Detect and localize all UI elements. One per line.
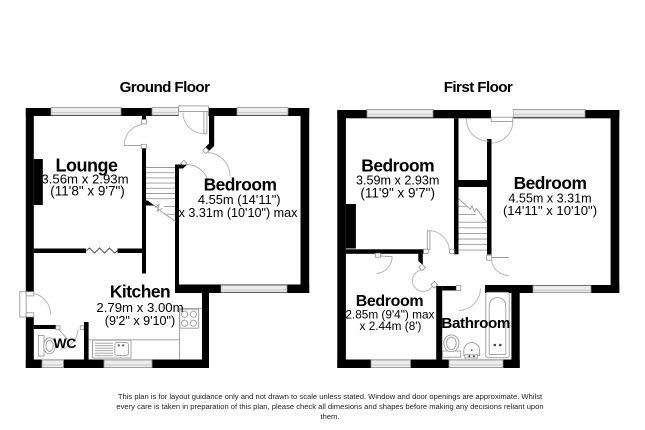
svg-text:Ground Floor: Ground Floor xyxy=(120,79,211,96)
svg-text:Kitchen: Kitchen xyxy=(110,282,170,302)
svg-text:(11'9" x 9'7"): (11'9" x 9'7") xyxy=(360,185,435,200)
svg-text:First Floor: First Floor xyxy=(444,79,513,96)
svg-text:them.: them. xyxy=(321,412,340,421)
svg-text:every care is taken in prepara: every care is taken in preparation of th… xyxy=(116,402,543,411)
svg-text:(9'2" x 9'10"): (9'2" x 9'10") xyxy=(105,314,175,328)
svg-text:Bedroom: Bedroom xyxy=(514,173,587,193)
svg-text:(11'8" x 9'7"): (11'8" x 9'7") xyxy=(50,183,125,198)
svg-text:2.79m x 3.00m: 2.79m x 3.00m xyxy=(96,300,183,315)
svg-text:Bathroom: Bathroom xyxy=(441,315,510,332)
svg-text:(14'11" x 10'10"): (14'11" x 10'10") xyxy=(503,203,597,218)
svg-text:WC: WC xyxy=(53,335,76,351)
svg-text:x 2.44m (8'): x 2.44m (8') xyxy=(360,319,422,333)
svg-text:This plan is for layout guidan: This plan is for layout guidance only an… xyxy=(118,392,543,401)
svg-text:x 3.31m (10'10") max: x 3.31m (10'10") max xyxy=(179,206,299,220)
